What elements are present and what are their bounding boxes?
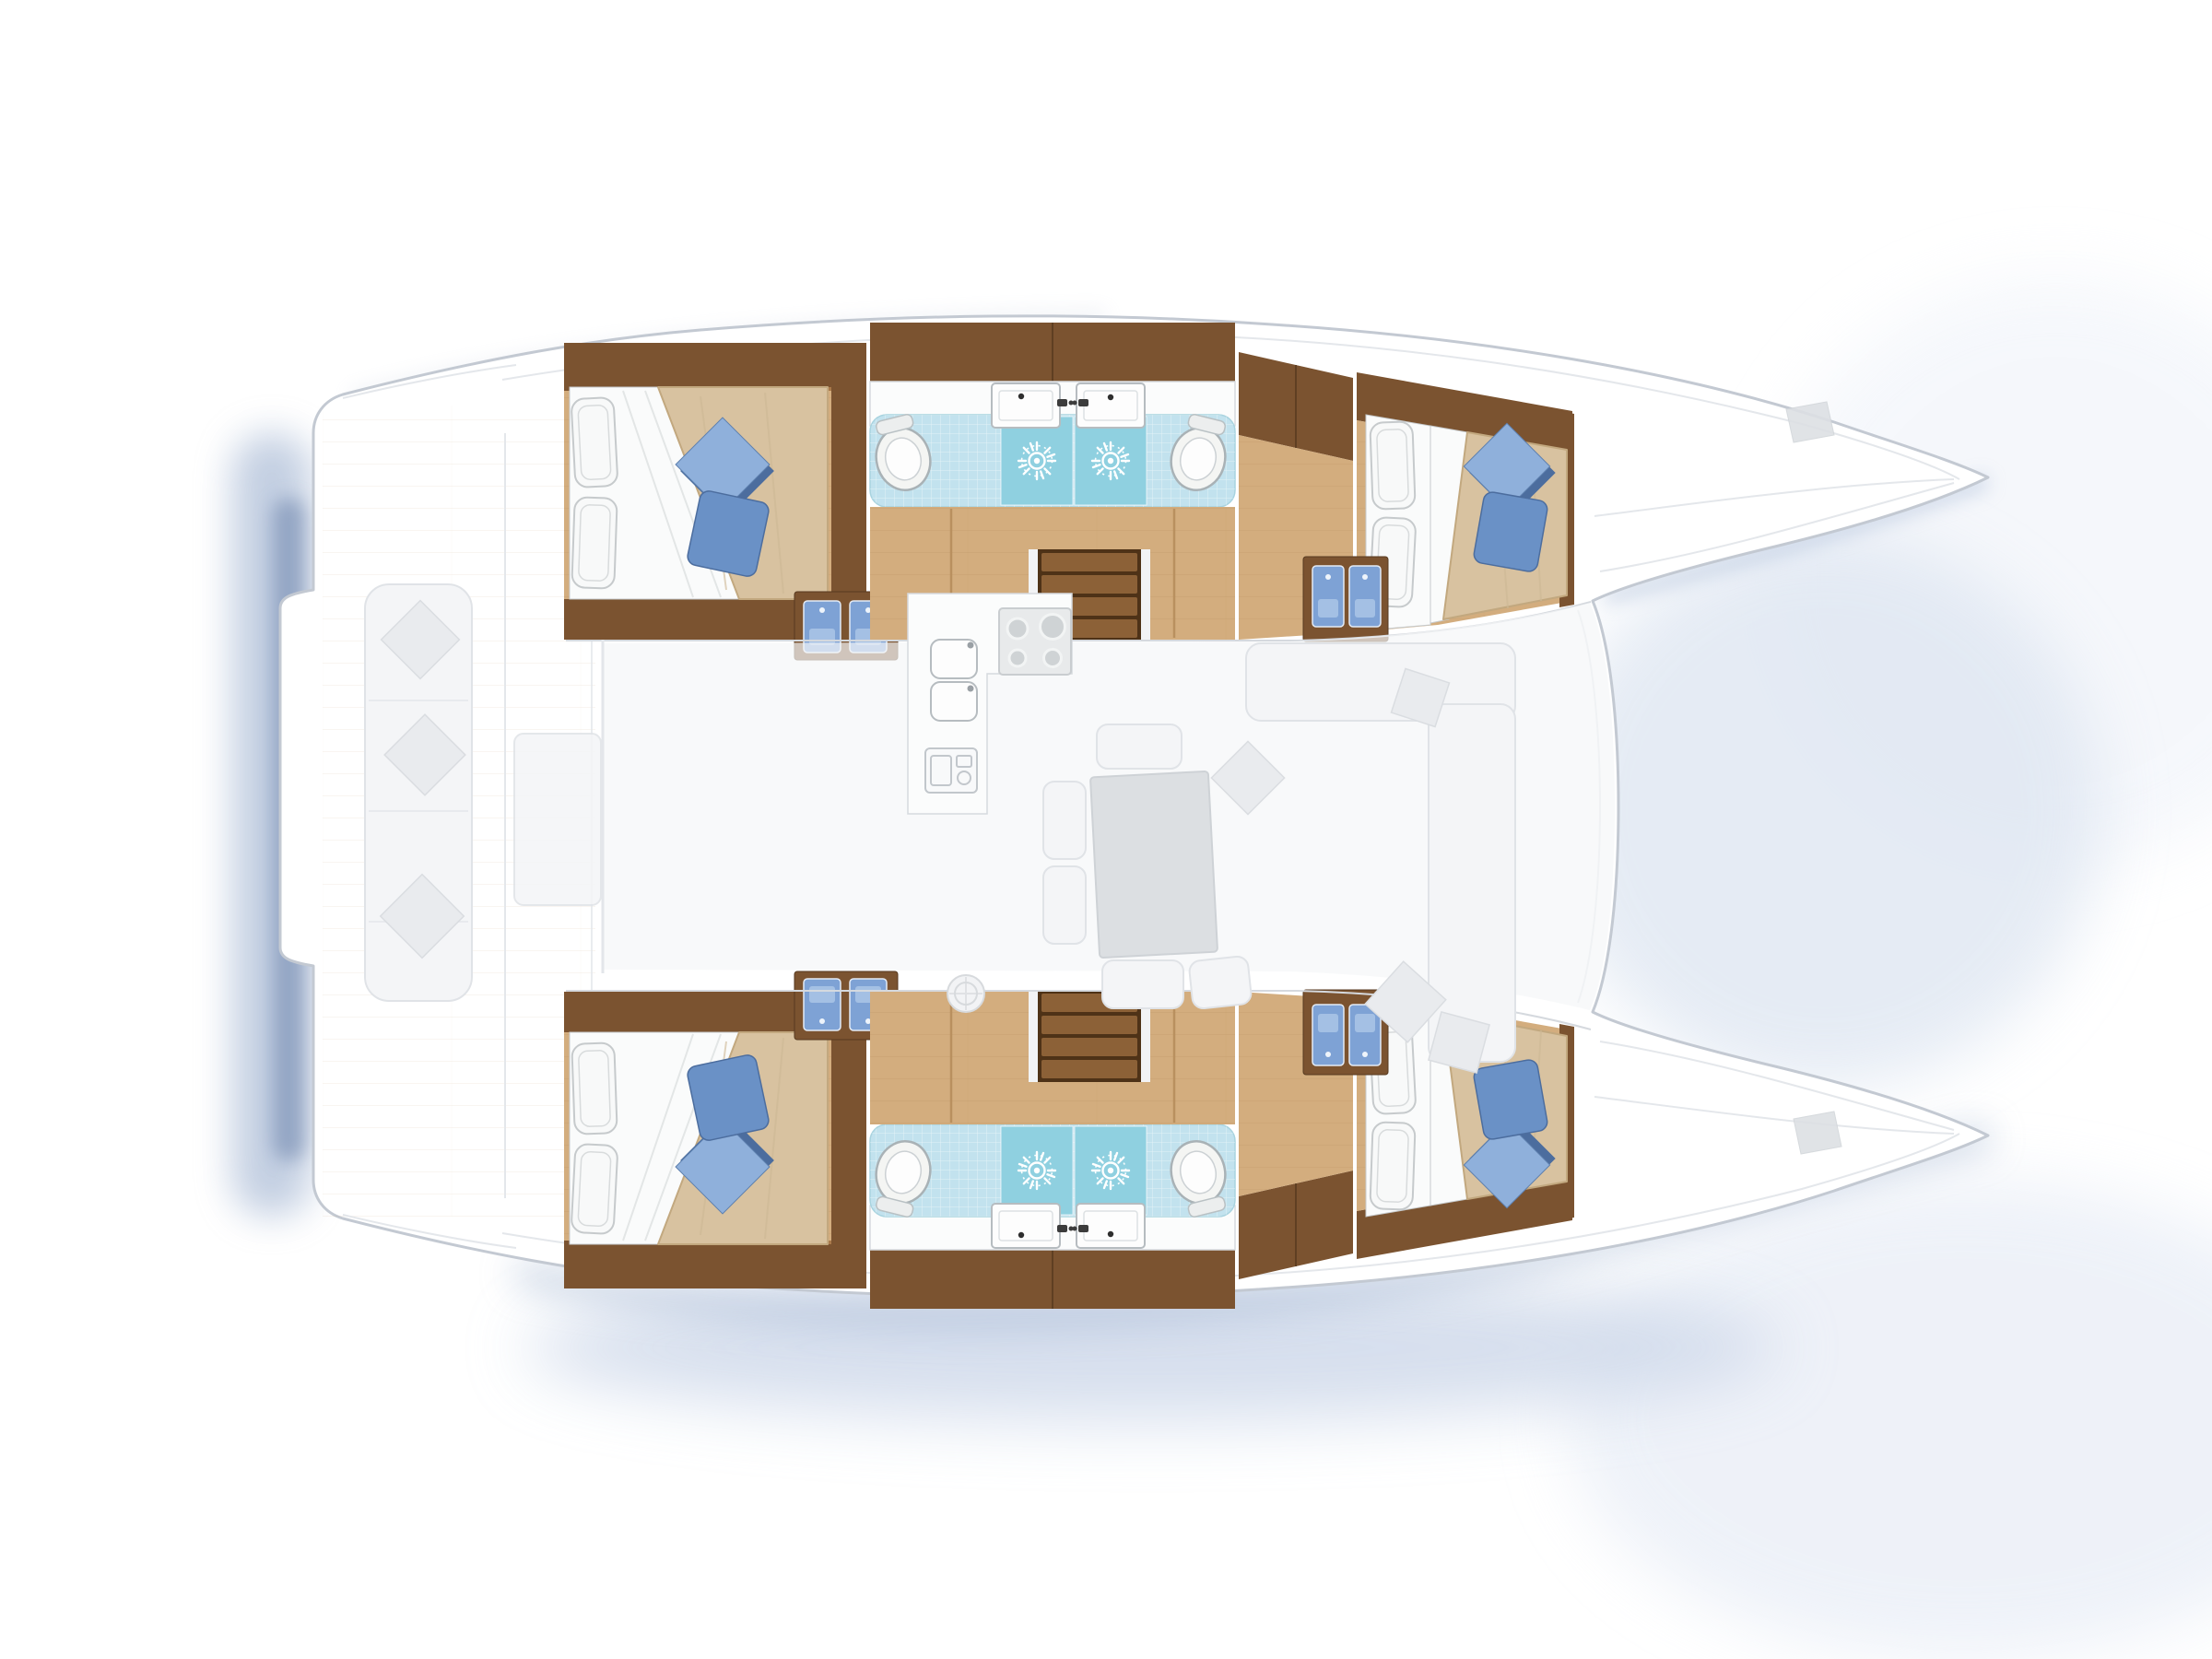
stair-jamb	[1141, 549, 1150, 641]
faucet-icon	[1078, 399, 1088, 406]
bathroom-sink	[1073, 383, 1146, 428]
white-pillow	[1370, 421, 1415, 510]
bow-hatch	[1794, 1112, 1841, 1154]
seat-cushion	[1097, 724, 1182, 769]
faucet-icon	[1057, 399, 1067, 406]
bow-hatch	[1786, 402, 1834, 442]
dinette-table	[1090, 771, 1218, 958]
stair-tread	[1041, 553, 1137, 571]
galley-faucet	[968, 642, 974, 649]
drain	[1018, 394, 1024, 399]
floor-plan	[0, 0, 2212, 1659]
double-bed	[570, 387, 828, 599]
floor-plan-stage	[0, 0, 2212, 1659]
background-wash	[1567, 1180, 2212, 1659]
white-pillow	[571, 497, 617, 589]
cockpit-table	[514, 734, 601, 905]
burner	[1041, 615, 1065, 640]
seat-cushion	[1043, 782, 1086, 859]
basin-bowl	[1355, 599, 1375, 618]
cabin-vanity	[1303, 557, 1388, 641]
shower-drain-icon	[1092, 442, 1129, 479]
burner	[1009, 650, 1026, 666]
basin-faucet	[819, 607, 825, 613]
basin-faucet	[1325, 574, 1331, 580]
burner	[1044, 650, 1062, 667]
white-pillow	[571, 397, 618, 488]
stair-tread	[1041, 575, 1137, 594]
cabin-aft	[564, 343, 898, 660]
basin-bowl	[1318, 599, 1338, 618]
cabin-wall	[564, 343, 866, 391]
basin-bowl	[809, 629, 835, 645]
cabin-forward	[1357, 372, 1574, 632]
galley-faucet	[968, 686, 974, 692]
seat-cushion	[1102, 960, 1183, 1008]
burner	[1007, 618, 1028, 639]
basin-faucet	[1362, 574, 1368, 580]
drain	[1108, 394, 1113, 400]
shower-drain-icon	[1018, 442, 1055, 479]
faucet-icon	[1073, 401, 1077, 406]
blue-pillow	[686, 489, 770, 578]
cockpit-ghost	[323, 365, 601, 1248]
blue-pillow	[1473, 491, 1548, 573]
seat-cushion	[1188, 956, 1252, 1009]
galley-appliance	[925, 748, 977, 793]
seat-cushion	[1043, 866, 1086, 944]
stove	[999, 608, 1071, 675]
salon-sofa	[1429, 704, 1515, 1062]
washing-machine-ghost	[947, 975, 984, 1012]
between-bows-shadow	[1548, 535, 2101, 1088]
cabin-wall	[564, 599, 833, 640]
